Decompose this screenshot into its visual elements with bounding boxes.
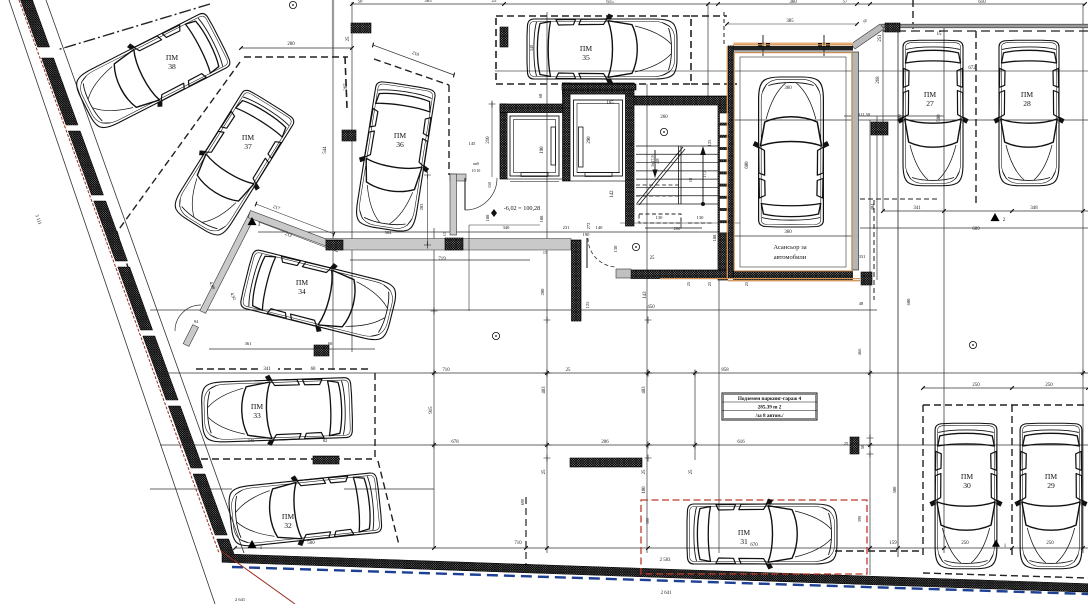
svg-text:2 641: 2 641 bbox=[235, 597, 245, 602]
svg-text:150: 150 bbox=[487, 182, 492, 188]
svg-text:188: 188 bbox=[539, 215, 544, 223]
svg-text:287: 287 bbox=[344, 83, 349, 91]
svg-text:125: 125 bbox=[585, 301, 590, 309]
svg-text:125: 125 bbox=[707, 139, 712, 147]
svg-text:ПМ: ПМ bbox=[394, 131, 406, 140]
svg-text:-6,02 = 100,28: -6,02 = 100,28 bbox=[504, 205, 541, 212]
svg-text:25: 25 bbox=[566, 368, 571, 373]
svg-text:678: 678 bbox=[451, 440, 459, 445]
svg-text:130: 130 bbox=[697, 215, 705, 220]
svg-text:ПМ: ПМ bbox=[924, 90, 936, 99]
svg-text:37: 37 bbox=[244, 142, 252, 151]
svg-text:300: 300 bbox=[645, 518, 650, 524]
svg-text:Подземен паркинг-гараж 4: Подземен паркинг-гараж 4 bbox=[738, 396, 802, 402]
svg-text:360: 360 bbox=[784, 230, 792, 235]
svg-text:50: 50 bbox=[860, 444, 865, 449]
svg-text:340: 340 bbox=[248, 438, 256, 443]
svg-text:50: 50 bbox=[358, 0, 363, 5]
svg-text:25: 25 bbox=[707, 282, 712, 286]
svg-text:57: 57 bbox=[843, 0, 848, 5]
svg-text:25: 25 bbox=[650, 256, 655, 261]
svg-text:4,92: 4,92 bbox=[229, 292, 238, 302]
svg-text:615: 615 bbox=[606, 0, 614, 5]
svg-text:3: 3 bbox=[258, 223, 261, 228]
svg-text:27: 27 bbox=[926, 99, 934, 108]
svg-text:35: 35 bbox=[582, 53, 590, 62]
svg-text:60: 60 bbox=[328, 341, 333, 346]
svg-text:29: 29 bbox=[1047, 481, 1055, 490]
svg-text:250: 250 bbox=[1045, 383, 1053, 388]
svg-text:ПМ: ПМ bbox=[580, 44, 592, 53]
svg-text:348: 348 bbox=[1030, 206, 1038, 211]
svg-text:25: 25 bbox=[689, 469, 694, 474]
svg-text:600: 600 bbox=[906, 298, 911, 306]
svg-text:130: 130 bbox=[656, 215, 664, 220]
svg-text:15: 15 bbox=[543, 250, 547, 255]
svg-text:ПМ: ПМ bbox=[166, 53, 178, 62]
svg-text:32: 32 bbox=[284, 521, 292, 530]
svg-text:ПМ: ПМ bbox=[1021, 90, 1033, 99]
svg-text:260: 260 bbox=[660, 115, 668, 120]
svg-text:500: 500 bbox=[937, 114, 942, 122]
svg-text:500: 500 bbox=[307, 541, 315, 546]
svg-text:28: 28 bbox=[1023, 99, 1031, 108]
svg-text:341: 341 bbox=[263, 367, 271, 372]
svg-text:280: 280 bbox=[287, 42, 295, 47]
svg-text:404: 404 bbox=[870, 203, 875, 211]
svg-text:ПМ: ПМ bbox=[738, 528, 750, 537]
svg-text:285,39 m 2: 285,39 m 2 bbox=[758, 405, 782, 411]
svg-text:48: 48 bbox=[859, 301, 864, 306]
svg-text:82: 82 bbox=[323, 438, 328, 443]
svg-text:340: 340 bbox=[529, 45, 534, 51]
svg-text:670: 670 bbox=[750, 543, 758, 548]
svg-text:403: 403 bbox=[542, 386, 547, 394]
svg-text:190: 190 bbox=[583, 232, 591, 237]
svg-text:31: 31 bbox=[740, 537, 748, 546]
svg-text:15: 15 bbox=[442, 232, 447, 236]
svg-text:340: 340 bbox=[503, 225, 511, 230]
svg-text:272: 272 bbox=[586, 223, 591, 230]
svg-text:3 111: 3 111 bbox=[33, 214, 41, 226]
svg-text:364: 364 bbox=[385, 230, 393, 235]
svg-text:290: 290 bbox=[587, 136, 592, 144]
svg-text:466: 466 bbox=[857, 348, 862, 356]
svg-text:автомобили: автомобили bbox=[774, 254, 807, 261]
svg-text:165: 165 bbox=[606, 101, 614, 106]
svg-text:690: 690 bbox=[520, 499, 525, 505]
svg-text:616: 616 bbox=[737, 440, 745, 445]
svg-text:311,50: 311,50 bbox=[858, 112, 871, 118]
svg-text:25: 25 bbox=[346, 36, 351, 41]
svg-text:331: 331 bbox=[859, 254, 866, 259]
svg-text:500: 500 bbox=[898, 114, 903, 122]
svg-text:2 641: 2 641 bbox=[661, 591, 672, 596]
svg-text:145: 145 bbox=[469, 141, 477, 146]
svg-text:34: 34 bbox=[298, 287, 306, 296]
svg-text:251: 251 bbox=[878, 34, 883, 42]
svg-text:/за 8 автом./: /за 8 автом./ bbox=[755, 413, 784, 419]
svg-text:60: 60 bbox=[538, 93, 543, 98]
svg-text:500: 500 bbox=[892, 486, 897, 494]
svg-text:143: 143 bbox=[643, 291, 648, 299]
svg-text:94: 94 bbox=[194, 319, 199, 324]
svg-text:250: 250 bbox=[961, 541, 969, 546]
svg-text:140: 140 bbox=[596, 225, 604, 230]
svg-text:ПМ: ПМ bbox=[296, 278, 308, 287]
svg-text:403: 403 bbox=[642, 386, 647, 394]
svg-text:25: 25 bbox=[744, 282, 749, 286]
svg-text:ПМ: ПМ bbox=[242, 133, 254, 142]
svg-text:125: 125 bbox=[629, 139, 634, 147]
svg-text:130: 130 bbox=[613, 245, 618, 253]
svg-text:25: 25 bbox=[492, 0, 497, 4]
svg-text:710: 710 bbox=[442, 368, 450, 373]
svg-text:142: 142 bbox=[610, 190, 615, 198]
svg-text:206: 206 bbox=[601, 440, 609, 445]
svg-text:268: 268 bbox=[876, 76, 881, 84]
svg-text:2 583: 2 583 bbox=[660, 558, 671, 563]
svg-text:36: 36 bbox=[396, 140, 404, 149]
svg-text:250: 250 bbox=[972, 383, 980, 388]
svg-text:50: 50 bbox=[862, 18, 868, 24]
svg-text:188: 188 bbox=[485, 214, 490, 222]
svg-text:188: 188 bbox=[712, 234, 717, 242]
svg-text:672: 672 bbox=[968, 66, 976, 71]
svg-text:25: 25 bbox=[686, 282, 691, 286]
svg-text:360: 360 bbox=[789, 0, 797, 5]
svg-text:10 10: 10 10 bbox=[472, 169, 481, 173]
svg-text:/28: /28 bbox=[655, 158, 660, 163]
svg-text:360: 360 bbox=[784, 86, 792, 91]
svg-text:203: 203 bbox=[419, 203, 424, 211]
svg-text:33: 33 bbox=[253, 411, 261, 420]
svg-text:390: 390 bbox=[857, 516, 862, 522]
svg-text:18: 18 bbox=[688, 178, 693, 182]
svg-text:915: 915 bbox=[429, 406, 434, 414]
svg-text:190: 190 bbox=[540, 146, 545, 154]
svg-text:25: 25 bbox=[542, 469, 547, 474]
svg-text:385: 385 bbox=[786, 19, 794, 24]
svg-text:610: 610 bbox=[978, 0, 986, 5]
svg-text:38: 38 bbox=[168, 62, 176, 71]
svg-text:210: 210 bbox=[486, 136, 491, 144]
svg-text:25: 25 bbox=[875, 130, 880, 135]
svg-text:кв0: кв0 bbox=[473, 162, 479, 166]
svg-text:450: 450 bbox=[647, 305, 655, 310]
svg-text:25: 25 bbox=[642, 469, 647, 474]
svg-text:231: 231 bbox=[563, 225, 570, 230]
svg-text:159: 159 bbox=[889, 541, 897, 546]
svg-text:341: 341 bbox=[913, 206, 921, 211]
svg-text:ПМ: ПМ bbox=[251, 402, 263, 411]
svg-text:2: 2 bbox=[1003, 218, 1006, 223]
svg-text:210: 210 bbox=[411, 51, 420, 58]
svg-text:858: 858 bbox=[721, 368, 729, 373]
svg-text:710: 710 bbox=[514, 541, 522, 546]
svg-text:200: 200 bbox=[674, 226, 682, 231]
svg-text:100: 100 bbox=[642, 486, 647, 494]
svg-text:30: 30 bbox=[963, 481, 971, 490]
svg-text:544: 544 bbox=[323, 146, 328, 154]
svg-text:361: 361 bbox=[245, 341, 252, 346]
svg-text:60: 60 bbox=[311, 367, 316, 372]
svg-text:1: 1 bbox=[260, 546, 263, 551]
svg-text:ПМ: ПМ bbox=[1045, 472, 1057, 481]
svg-text:719: 719 bbox=[438, 257, 446, 262]
svg-text:689: 689 bbox=[972, 227, 980, 232]
svg-text:15: 15 bbox=[937, 32, 942, 37]
svg-text:200: 200 bbox=[540, 288, 545, 296]
svg-text:ПМ: ПМ bbox=[282, 512, 294, 521]
svg-text:Асансьор за: Асансьор за bbox=[773, 244, 806, 251]
svg-text:ПМ: ПМ bbox=[961, 472, 973, 481]
svg-text:217: 217 bbox=[272, 205, 281, 212]
svg-text:600: 600 bbox=[745, 161, 750, 169]
svg-text:385: 385 bbox=[424, 0, 432, 4]
svg-text:250: 250 bbox=[1046, 541, 1054, 546]
svg-text:25: 25 bbox=[844, 441, 849, 446]
